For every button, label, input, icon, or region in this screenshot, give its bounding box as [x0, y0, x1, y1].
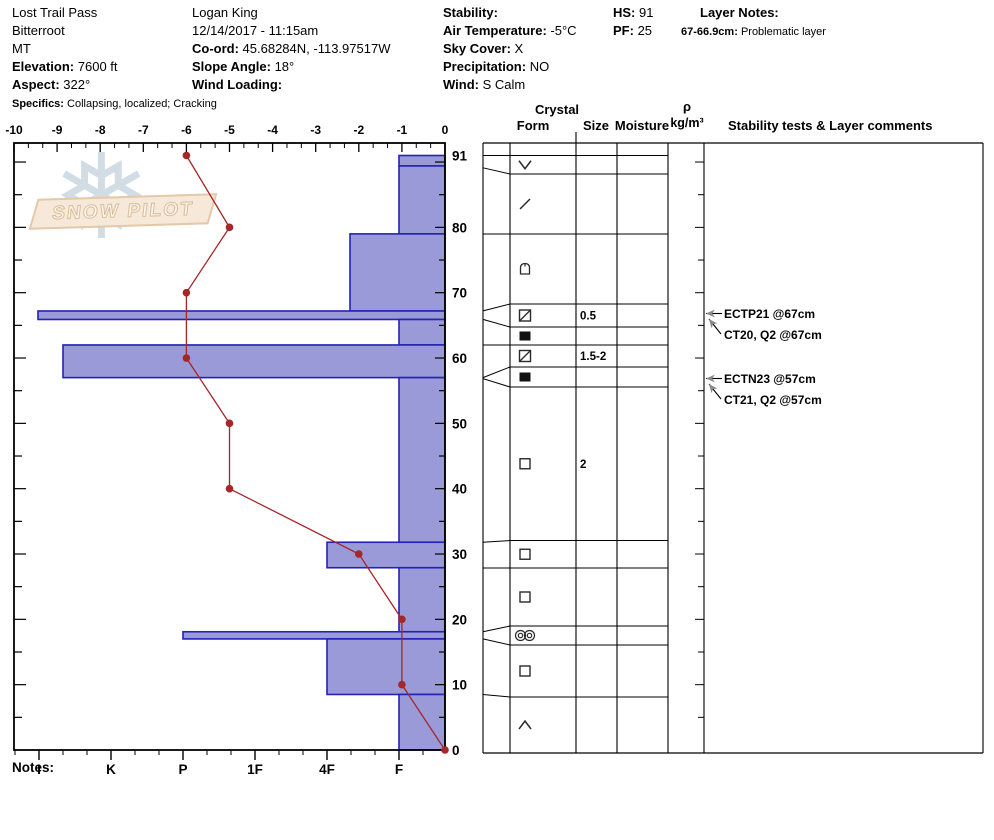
- depth-axis-label: 30: [452, 547, 467, 562]
- temperature-point: [398, 616, 406, 624]
- temperature-point: [183, 152, 191, 160]
- hardness-bar: [38, 311, 445, 319]
- density-header: ρ: [683, 99, 691, 114]
- depth-axis-label: 60: [452, 351, 467, 366]
- depth-axis-label: 10: [452, 678, 467, 693]
- temp-axis-label: -8: [95, 123, 106, 137]
- temperature-point: [183, 354, 191, 362]
- temperature-point: [226, 485, 234, 493]
- layer-connector-fan: [483, 304, 510, 311]
- temperature-point: [355, 550, 363, 558]
- grain-size-value: 0.5: [580, 311, 597, 323]
- moisture-header: Moisture: [615, 118, 669, 133]
- layer-connector-fan: [483, 626, 510, 632]
- surface-hoar-icon: [519, 161, 531, 169]
- hardness-bar: [327, 542, 445, 567]
- hardness-bar: [399, 155, 445, 165]
- notes-label: Notes:: [12, 760, 54, 775]
- square-diagonal-icon: [520, 310, 531, 321]
- depth-axis-label: 70: [452, 286, 467, 301]
- temp-axis-label: -3: [310, 123, 321, 137]
- ice-crust-icon: [520, 373, 531, 382]
- density-unit-header: kg/m³: [670, 116, 703, 130]
- temp-axis-label: -4: [267, 123, 278, 137]
- depth-axis-label: 50: [452, 416, 467, 431]
- temperature-point: [398, 681, 406, 689]
- chevron-up-icon: [519, 721, 531, 729]
- grain-size-value: 2: [580, 459, 586, 471]
- layer-connector-fan: [483, 639, 510, 645]
- layer-connector-fan: [483, 379, 510, 387]
- temp-axis-label: -1: [397, 123, 408, 137]
- temp-axis-label: 0: [442, 123, 449, 137]
- stability-test-label: ECTN23 @57cm: [724, 372, 816, 386]
- temp-axis-label: -6: [181, 123, 192, 137]
- ice-crust-icon: [520, 332, 531, 341]
- form-header: Form: [517, 118, 550, 133]
- depth-axis-label: 40: [452, 482, 467, 497]
- depth-axis-label: 0: [452, 743, 460, 758]
- snowpilot-profile-page: Lost Trail PassBitterrootMTElevation: 76…: [0, 0, 994, 840]
- hardness-axis-label: F: [395, 762, 403, 777]
- square-diagonal-icon: [520, 351, 531, 362]
- layer-connector-fan: [483, 367, 510, 378]
- hardness-bar: [63, 345, 445, 378]
- hardness-bar: [399, 166, 445, 234]
- stability-test-label: CT20, Q2 @67cm: [724, 328, 822, 342]
- open-square-icon: [520, 459, 530, 469]
- open-square-icon: [520, 592, 530, 602]
- hardness-bar: [327, 639, 445, 695]
- double-circles-icon: [518, 633, 522, 637]
- hardness-bar: [183, 632, 445, 639]
- grain-size-value: 1.5-2: [580, 351, 606, 363]
- comments-header: Stability tests & Layer comments: [728, 118, 932, 133]
- decomposing-icon: [520, 199, 530, 209]
- hardness-axis-label: 4F: [319, 762, 335, 777]
- hardness-bar: [399, 319, 445, 344]
- stability-test-arrow: [709, 384, 721, 399]
- open-square-icon: [520, 666, 530, 676]
- depth-axis-label: 80: [452, 220, 467, 235]
- crystal-header: Crystal: [535, 102, 579, 117]
- temperature-point: [226, 224, 234, 232]
- depth-axis-label: 91: [452, 148, 468, 163]
- temperature-point: [441, 746, 449, 754]
- temp-axis-label: -5: [224, 123, 235, 137]
- layer-connector-fan: [483, 319, 510, 327]
- hardness-bar: [350, 234, 445, 311]
- layer-connector-fan: [483, 168, 510, 174]
- size-header: Size: [583, 118, 609, 133]
- temp-axis-label: -9: [52, 123, 63, 137]
- stability-test-arrow: [709, 319, 721, 334]
- temp-axis-label: -10: [5, 123, 23, 137]
- stability-test-label: ECTP21 @67cm: [724, 307, 815, 321]
- temperature-point: [183, 289, 191, 297]
- double-circles-icon: [527, 633, 531, 637]
- temperature-point: [226, 420, 234, 428]
- layer-connector-fan: [483, 541, 510, 543]
- hardness-axis-label: K: [106, 762, 116, 777]
- stability-test-label: CT21, Q2 @57cm: [724, 393, 822, 407]
- profile-chart: -10-9-8-7-6-5-4-3-2-10IKP1F4FF9180706050…: [0, 0, 994, 840]
- temp-axis-label: -2: [353, 123, 364, 137]
- temp-axis-label: -7: [138, 123, 149, 137]
- open-square-icon: [520, 549, 530, 559]
- hardness-axis-label: 1F: [247, 762, 263, 777]
- hardness-bar: [399, 694, 445, 750]
- hardness-bar: [399, 568, 445, 632]
- hardness-bar: [399, 378, 445, 543]
- hardness-axis-label: P: [178, 762, 187, 777]
- depth-axis-label: 20: [452, 612, 467, 627]
- layer-connector-fan: [483, 695, 510, 698]
